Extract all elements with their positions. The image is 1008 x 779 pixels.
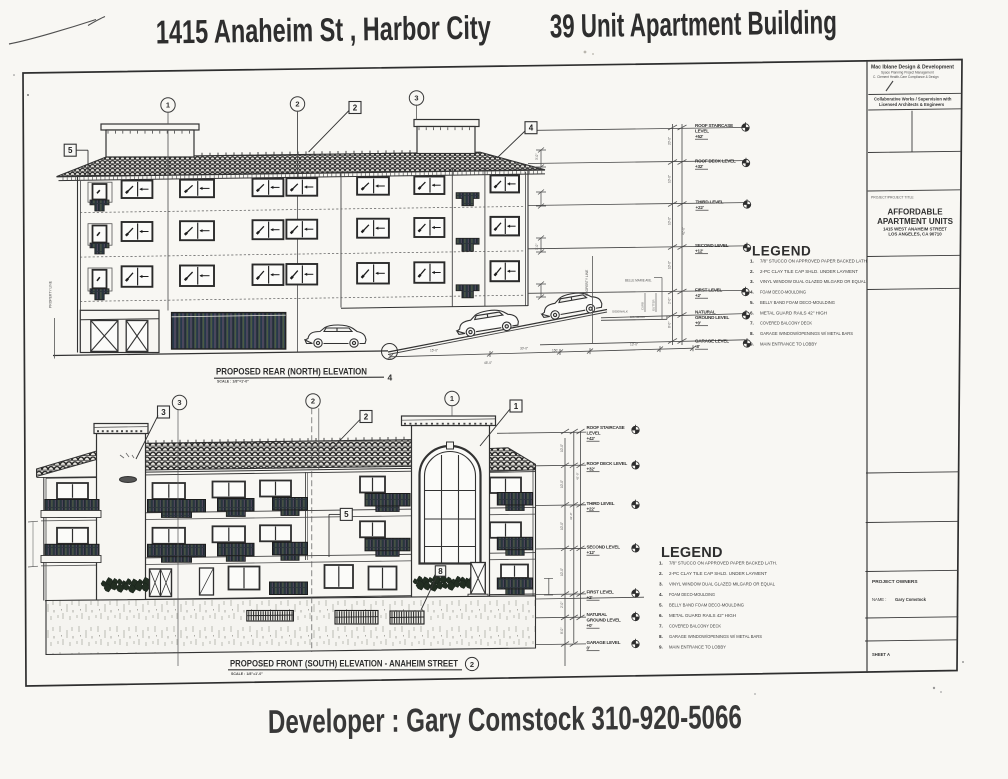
svg-text:2.: 2. <box>750 269 754 274</box>
svg-text:VINYL WINDOW DUAL GLAZED MILGA: VINYL WINDOW DUAL GLAZED MILGARD OR EQUA… <box>669 582 775 587</box>
svg-text:COVERED BALCONY DECK: COVERED BALCONY DECK <box>669 624 722 629</box>
svg-text:FOAM DECO-MOULDING: FOAM DECO-MOULDING <box>669 592 715 597</box>
svg-text:BELLE MARIE AVE.: BELLE MARIE AVE. <box>625 279 652 283</box>
svg-text:-8': -8' <box>695 344 700 349</box>
svg-text:7/8" STUCCO ON APPROVED PAPER: 7/8" STUCCO ON APPROVED PAPER BACKED LAT… <box>760 259 868 264</box>
svg-text:PROPOSED REAR (NORTH) ELEVATIO: PROPOSED REAR (NORTH) ELEVATION <box>216 367 367 378</box>
svg-text:GARAGE WINDOW/OPENINGS W/ META: GARAGE WINDOW/OPENINGS W/ METAL BARS <box>669 634 762 639</box>
svg-text:1.: 1. <box>750 259 754 264</box>
svg-text:10'-0": 10'-0" <box>560 480 564 488</box>
svg-text:4: 4 <box>388 373 393 383</box>
svg-text:PROPOSED FRONT (SOUTH) ELEVATI: PROPOSED FRONT (SOUTH) ELEVATION - ANAHE… <box>230 659 458 670</box>
svg-text:FIRST LEVEL: FIRST LEVEL <box>587 590 615 595</box>
svg-text:42'-0": 42'-0" <box>576 472 580 480</box>
svg-text:2: 2 <box>311 397 315 406</box>
svg-text:2: 2 <box>295 100 299 109</box>
svg-text:3.: 3. <box>750 279 754 284</box>
svg-text:GROUND LEVEL: GROUND LEVEL <box>587 618 621 623</box>
svg-text:5: 5 <box>344 510 349 519</box>
svg-text:+0': +0' <box>695 321 701 326</box>
svg-text:10'-0": 10'-0" <box>560 522 564 530</box>
svg-text:2-PC CLAY TILE CAP SHLD. UNDER: 2-PC CLAY TILE CAP SHLD. UNDER LAYMENT <box>760 269 858 274</box>
svg-text:3.: 3. <box>659 582 663 587</box>
svg-text:AFFORDABLE: AFFORDABLE <box>887 208 943 217</box>
svg-text:GARAGE LEVEL: GARAGE LEVEL <box>587 640 621 645</box>
svg-text:+12': +12' <box>587 550 595 555</box>
svg-text:20'-0": 20'-0" <box>668 137 672 145</box>
svg-text:1: 1 <box>166 101 170 110</box>
svg-text:LEGEND: LEGEND <box>661 545 723 561</box>
svg-text:10'-0": 10'-0" <box>560 444 564 452</box>
svg-text:FIRST LEVEL: FIRST LEVEL <box>695 288 723 293</box>
svg-text:3: 3 <box>414 94 418 103</box>
svg-text:PROJECT OWNERS: PROJECT OWNERS <box>872 579 918 585</box>
svg-text:C. Clement Health-Care Complia: C. Clement Health-Care Compliance & Desi… <box>873 75 939 79</box>
svg-text:1.: 1. <box>659 561 663 566</box>
svg-text:30'-0": 30'-0" <box>520 347 528 351</box>
svg-text:GUTTER: GUTTER <box>652 300 656 312</box>
svg-text:ROOF STAIRCASE: ROOF STAIRCASE <box>587 425 625 430</box>
svg-text:SECOND LEVEL: SECOND LEVEL <box>695 243 729 248</box>
svg-text:10'-0": 10'-0" <box>668 261 672 269</box>
svg-text:4.: 4. <box>750 290 754 295</box>
svg-text:BELLY BAND FOAM DECO-MOULDING: BELLY BAND FOAM DECO-MOULDING <box>669 603 744 608</box>
svg-text:PROPERTY LINE: PROPERTY LINE <box>49 280 53 308</box>
svg-text:7.: 7. <box>750 321 754 326</box>
svg-text:NAME :: NAME : <box>872 597 886 602</box>
svg-text:2: 2 <box>364 412 369 421</box>
svg-text:4: 4 <box>529 124 534 133</box>
svg-text:VINYL WINDOW DUAL GLAZED MILGA: VINYL WINDOW DUAL GLAZED MILGARD OR EQUA… <box>760 279 866 284</box>
svg-text:9.: 9. <box>750 341 754 346</box>
svg-text:LEGEND: LEGEND <box>752 244 811 259</box>
svg-text:1: 1 <box>514 402 519 411</box>
svg-text:6.: 6. <box>750 310 754 315</box>
svg-text:MAIN ENTRANCE TO LOBBY: MAIN ENTRANCE TO LOBBY <box>760 341 817 346</box>
svg-text:8'-0": 8'-0" <box>560 628 564 634</box>
svg-text:15'-0": 15'-0" <box>430 349 438 353</box>
svg-text:2-PC CLAY TILE CAP SHLD. UNDER: 2-PC CLAY TILE CAP SHLD. UNDER LAYMENT <box>669 571 767 576</box>
svg-text:1415 Anaheim St , Harbor City: 1415 Anaheim St , Harbor City <box>156 9 492 51</box>
svg-text:PROJECT/PROJECT TITLE: PROJECT/PROJECT TITLE <box>871 196 914 200</box>
svg-text:2'-0": 2'-0" <box>668 298 672 304</box>
svg-text:SIDEWALK: SIDEWALK <box>612 310 628 314</box>
svg-text:SCALE : 1/8"=1'-0": SCALE : 1/8"=1'-0" <box>231 672 263 676</box>
svg-text:8.: 8. <box>750 331 754 336</box>
svg-text:THIRD LEVEL: THIRD LEVEL <box>696 200 724 205</box>
svg-text:+12': +12' <box>695 249 703 254</box>
svg-text:5: 5 <box>68 146 73 155</box>
svg-text:SECOND LEVEL: SECOND LEVEL <box>587 545 621 550</box>
svg-text:+2': +2' <box>695 293 701 298</box>
svg-text:DRIVEWAY: DRIVEWAY <box>630 315 646 319</box>
svg-text:BELLY BAND FOAM DECO-MOULDING: BELLY BAND FOAM DECO-MOULDING <box>760 300 835 305</box>
svg-text:SCALE : 1/8"=1'-0": SCALE : 1/8"=1'-0" <box>217 380 249 384</box>
svg-text:METAL GUARD RAILS 42" HIGH: METAL GUARD RAILS 42" HIGH <box>760 310 827 315</box>
svg-text:METAL GUARD RAILS 42" HIGH: METAL GUARD RAILS 42" HIGH <box>669 613 736 618</box>
svg-text:45'-0": 45'-0" <box>484 361 492 365</box>
svg-text:2'-0": 2'-0" <box>560 602 564 608</box>
svg-text:+42': +42' <box>587 436 595 441</box>
svg-text:Developer : Gary Comstock: Developer : Gary Comstock 310-920-5066 <box>268 698 742 740</box>
svg-text:1: 1 <box>450 394 454 403</box>
svg-text:PROPERTY LINE: PROPERTY LINE <box>585 269 589 296</box>
svg-text:10'-0": 10'-0" <box>668 175 672 183</box>
svg-text:GROUND LEVEL: GROUND LEVEL <box>695 315 729 320</box>
svg-text:8: 8 <box>438 567 443 576</box>
svg-text:NATURAL: NATURAL <box>695 310 716 315</box>
svg-text:5.: 5. <box>659 603 663 608</box>
svg-text:NATURAL: NATURAL <box>587 612 608 617</box>
svg-text:GARAGE WINDOW/OPENINGS W/ META: GARAGE WINDOW/OPENINGS W/ METAL BARS <box>760 331 853 336</box>
svg-text:+32': +32' <box>695 164 703 169</box>
svg-text:2: 2 <box>353 103 358 112</box>
svg-text:THIRD LEVEL: THIRD LEVEL <box>587 501 615 506</box>
svg-text:5.: 5. <box>750 300 754 305</box>
svg-text:Gary Comstock: Gary Comstock <box>895 597 927 602</box>
svg-text:6.: 6. <box>659 613 663 618</box>
svg-text:+52': +52' <box>695 134 703 139</box>
svg-text:7/8" STUCCO ON APPROVED PAPER: 7/8" STUCCO ON APPROVED PAPER BACKED LAT… <box>669 561 777 566</box>
svg-text:GARAGE LEVEL: GARAGE LEVEL <box>695 339 729 344</box>
svg-text:ROOF DECK LEVEL: ROOF DECK LEVEL <box>587 461 628 466</box>
svg-text:150': 150' <box>552 349 558 353</box>
svg-text:SHEET A: SHEET A <box>872 652 890 657</box>
svg-text:3'-0": 3'-0" <box>535 154 539 160</box>
svg-text:+22': +22' <box>696 205 704 210</box>
svg-text:LEVEL: LEVEL <box>695 129 709 134</box>
svg-text:+32': +32' <box>587 467 595 472</box>
svg-text:+0': +0' <box>587 623 593 628</box>
svg-text:8'-0": 8'-0" <box>668 322 672 328</box>
svg-text:9.: 9. <box>659 645 663 650</box>
svg-text:+2': +2' <box>587 595 593 600</box>
svg-text:32'-0": 32'-0" <box>569 512 573 520</box>
svg-text:4.: 4. <box>659 592 663 597</box>
svg-text:42'-0": 42'-0" <box>682 227 686 235</box>
svg-text:39 Unit Apartment Building: 39 Unit Apartment Building <box>550 3 838 44</box>
svg-text:7.: 7. <box>659 624 663 629</box>
svg-text:CURB: CURB <box>641 302 645 310</box>
svg-text:LEVEL: LEVEL <box>587 431 601 436</box>
svg-text:ROOF STAIRCASE: ROOF STAIRCASE <box>695 123 733 128</box>
svg-text:10'-0": 10'-0" <box>560 568 564 576</box>
svg-text:LOS ANGELES, CA 90710: LOS ANGELES, CA 90710 <box>888 232 942 237</box>
svg-text:Collaborative Works / Supervis: Collaborative Works / Supervision with <box>874 97 952 102</box>
svg-text:3: 3 <box>177 398 181 407</box>
svg-text:MAIN ENTRANCE TO LOBBY: MAIN ENTRANCE TO LOBBY <box>669 645 726 650</box>
svg-text:Licensed Architects & Engineer: Licensed Architects & Engineers <box>879 102 945 107</box>
svg-text:3: 3 <box>161 408 166 417</box>
svg-text:2: 2 <box>470 660 474 669</box>
svg-text:2.: 2. <box>659 571 663 576</box>
svg-text:COVERED BALCONY DECK: COVERED BALCONY DECK <box>760 321 813 326</box>
svg-text:+22': +22' <box>587 507 595 512</box>
svg-text:0': 0' <box>587 646 590 651</box>
svg-text:APARTMENT UNITS: APARTMENT UNITS <box>877 217 954 226</box>
svg-text:ROOF DECK LEVEL: ROOF DECK LEVEL <box>695 159 736 164</box>
svg-text:13'-0": 13'-0" <box>630 343 638 347</box>
svg-text:8.: 8. <box>659 634 663 639</box>
svg-text:FOAM DECO-MOULDING: FOAM DECO-MOULDING <box>760 290 806 295</box>
svg-text:10'-0": 10'-0" <box>668 217 672 225</box>
